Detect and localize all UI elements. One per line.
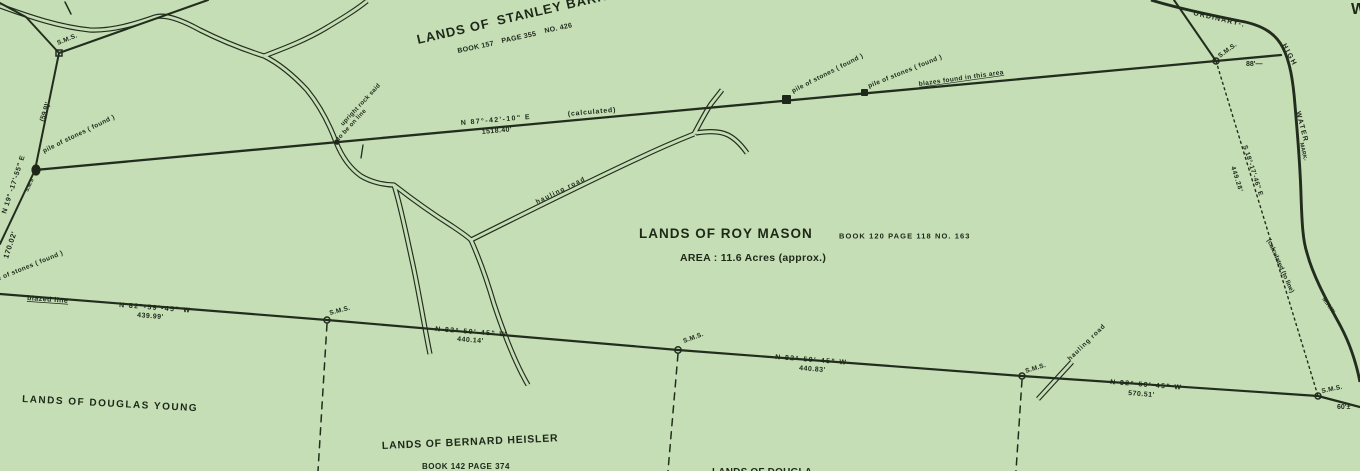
svg-text:W: W [1351, 1, 1360, 18]
svg-text:88'—: 88'— [1246, 61, 1262, 68]
svg-text:BOOK 120 PAGE 118 NO. 163: BOOK 120 PAGE 118 NO. 163 [839, 232, 971, 241]
svg-text:60'±: 60'± [1337, 404, 1350, 411]
svg-text:LANDS OF DOUGLA: LANDS OF DOUGLA [712, 467, 812, 471]
svg-text:LANDS OF ROY MASON: LANDS OF ROY MASON [639, 226, 813, 241]
svg-text:BOOK 142 PAGE 374: BOOK 142 PAGE 374 [422, 462, 510, 471]
svg-text:AREA : 11.6 Acres (approx.): AREA : 11.6 Acres (approx.) [680, 252, 826, 264]
